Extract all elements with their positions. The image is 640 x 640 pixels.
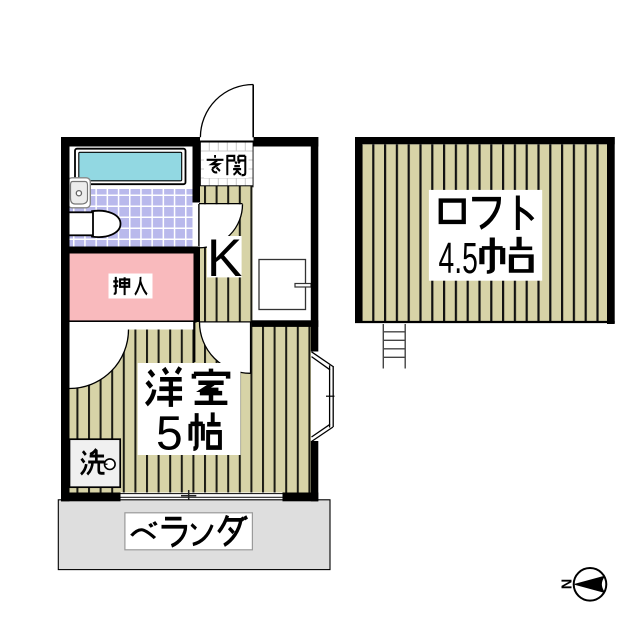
svg-text:N: N [559, 579, 575, 589]
svg-text:4.5: 4.5 [439, 234, 478, 283]
svg-text:5: 5 [156, 408, 183, 461]
svg-text:K: K [207, 229, 242, 288]
